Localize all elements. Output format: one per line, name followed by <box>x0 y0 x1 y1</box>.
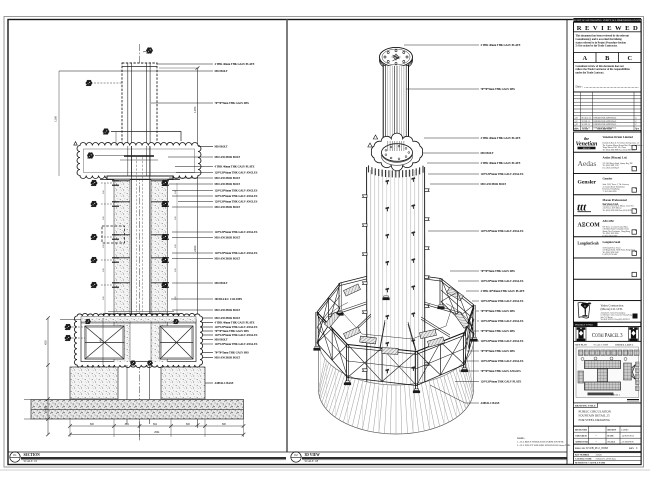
svg-text:M10 ANCHOR BOLT: M10 ANCHOR BOLT <box>215 309 241 312</box>
svg-text:PARCEL 1, LOT 2: PARCEL 1, LOT 2 <box>616 344 634 347</box>
svg-text:70*70*5mm THK GALV SHS: 70*70*5mm THK GALV SHS <box>215 352 250 355</box>
svg-text:REFERENCE CAD FILE NAME: REFERENCE CAD FILE NAME <box>575 462 606 465</box>
svg-text:AECOM: AECOM <box>603 219 614 223</box>
svg-text:CHECKED: CHECKED <box>575 436 587 438</box>
svg-text:M10 ANCHOR BOLT: M10 ANCHOR BOLT <box>215 177 241 180</box>
svg-text:Gensler: Gensler <box>578 180 597 186</box>
svg-text:70*70*5mm THK GALV SHS: 70*70*5mm THK GALV SHS <box>481 330 516 333</box>
svg-text:Langdon Seah: Langdon Seah <box>603 240 621 244</box>
svg-text:120*120*6mm THK GALV PLATE: 120*120*6mm THK GALV PLATE <box>481 381 522 384</box>
svg-text:315UB_PC_20005.dwg: 315UB_PC_20005.dwg <box>596 458 616 461</box>
svg-text:KEY PLAN: KEY PLAN <box>576 344 588 347</box>
svg-text:AΞCOM: AΞCOM <box>578 223 601 229</box>
svg-text:1260: 1260 <box>54 116 58 123</box>
svg-text:70*70*5mm THK GALV SHS: 70*70*5mm THK GALV SHS <box>215 330 250 333</box>
svg-text:Tel:(853) 28703211 Fax:(853): Tel:(853) 28703211 Fax:(853) 28703212 <box>601 318 631 321</box>
svg-text:SCALE 1:5: SCALE 1:5 <box>24 459 38 463</box>
svg-text:M10 BOLT: M10 BOLT <box>215 70 228 73</box>
svg-text:DRAWN: DRAWN <box>608 429 617 432</box>
svg-text:(Macau) CO. LTD.: (Macau) CO. LTD. <box>601 307 623 311</box>
svg-text:4 THK 40mm THK GALV PLATE: 4 THK 40mm THK GALV PLATE <box>215 166 255 169</box>
svg-text:2. ALL FILLET WELDED SHOULD BE: 2. ALL FILLET WELDED SHOULD BE 6mm THK. <box>517 444 571 447</box>
svg-text:Fax: (852) 2529 8419: Fax: (852) 2529 8419 <box>603 166 619 169</box>
svg-text:DESIGNED: DESIGNED <box>575 430 587 432</box>
svg-text:450: 450 <box>44 340 48 345</box>
svg-text:LUMO: LUMO <box>622 430 629 432</box>
svg-text:M10 ANCHOR BOLT: M10 ANCHOR BOLT <box>215 357 241 360</box>
svg-text:120*120*6mm THK GALV ANGLES: 120*120*6mm THK GALV ANGLES <box>215 231 258 234</box>
svg-text:70*70*5mm THK GALV SHS: 70*70*5mm THK GALV SHS <box>215 102 250 105</box>
svg-text:120*120*6mm THK GALV ANGLES: 120*120*6mm THK GALV ANGLES <box>215 334 258 337</box>
svg-text:M10 BOLT: M10 BOLT <box>215 146 228 149</box>
svg-text:120*120*6mm THK GALV ANGLES: 120*120*6mm THK GALV ANGLES <box>215 343 258 346</box>
svg-text:KEY NUMBER: KEY NUMBER <box>575 455 590 457</box>
svg-text:Venetian: Venetian <box>576 142 598 148</box>
svg-text:SCALE 1:8: SCALE 1:8 <box>305 459 319 463</box>
svg-text:450: 450 <box>100 337 103 342</box>
svg-text:PARCEL 2: PARCEL 2 <box>611 393 620 396</box>
svg-text:A: A <box>582 55 587 62</box>
svg-text:14-JUN-2015: 14-JUN-2015 <box>622 436 635 438</box>
svg-text:29 JUL 15: 29 JUL 15 <box>582 121 591 123</box>
svg-text:SECTION: SECTION <box>24 453 41 457</box>
svg-text:120*120*6mm THK GALV ANGLES: 120*120*6mm THK GALV ANGLES <box>215 201 258 204</box>
svg-text:MACAO: MACAO <box>583 147 591 150</box>
svg-text:△D: △D <box>575 116 579 119</box>
svg-text:A588 R.C BASE: A588 R.C BASE <box>481 402 500 405</box>
svg-text:02: 02 <box>294 453 298 457</box>
svg-text:120*120*6mm THK GALV ANGLES: 120*120*6mm THK GALV ANGLES <box>481 230 524 233</box>
svg-text:3D VIEW: 3D VIEW <box>305 453 321 457</box>
svg-text:AS SHOWN: AS SHOWN <box>622 441 634 444</box>
svg-text:DESCRIPTION: DESCRIPTION <box>598 128 613 130</box>
svg-text:M10 ANCHOR BOLT: M10 ANCHOR BOLT <box>215 156 241 159</box>
svg-text:120*120*6mm THK GALV ANGLES: 120*120*6mm THK GALV ANGLES <box>215 252 258 255</box>
svg-text:DATE: DATE <box>608 435 615 438</box>
svg-text:C: C <box>636 447 638 450</box>
svg-text:4 THK 40mm THK GALV PLATE: 4 THK 40mm THK GALV PLATE <box>215 63 255 66</box>
svg-text:ISSUED FOR APPROVAL: ISSUED FOR APPROVAL <box>594 120 618 123</box>
svg-text:APPROVED: APPROVED <box>575 441 588 444</box>
svg-text:M10 ANCHOR BOLT: M10 ANCHOR BOLT <box>215 206 241 209</box>
svg-text:4 THK 40*40mm THK GALV PLATE: 4 THK 40*40mm THK GALV PLATE <box>481 290 525 293</box>
svg-text:M10 ANCHOR BOLT: M10 ANCHOR BOLT <box>215 237 241 240</box>
svg-text:PROJECT TITLE: PROJECT TITLE <box>575 324 594 327</box>
svg-text:the: the <box>584 136 589 141</box>
svg-text:120*120*6mm THK GALV ANGLES: 120*120*6mm THK GALV ANGLES <box>215 326 258 329</box>
svg-text:70*70*5mm THK GALV SHS: 70*70*5mm THK GALV SHS <box>481 270 516 273</box>
svg-text:Services Ltd.: Services Ltd. <box>603 202 619 206</box>
svg-text:ISSUED FOR APPROVAL: ISSUED FOR APPROVAL <box>594 116 618 119</box>
svg-text:CAD FILE NAME: CAD FILE NAME <box>575 458 592 461</box>
svg-text:120*120*6mm THK GALV ANGLES: 120*120*6mm THK GALV ANGLES <box>481 173 524 176</box>
svg-text:M10 BOLT: M10 BOLT <box>481 152 494 155</box>
svg-text:--: -- <box>596 436 598 438</box>
svg-text:120*120*6mm THK GALV ANGLES: 120*120*6mm THK GALV ANGLES <box>481 280 524 283</box>
svg-text:20 JUL 15: 20 JUL 15 <box>582 124 591 126</box>
svg-text:120*120*6mm THK GALV ANGLES: 120*120*6mm THK GALV ANGLES <box>215 190 258 193</box>
svg-text:120*120*6mm THK GALV ANGLES: 120*120*6mm THK GALV ANGLES <box>215 195 258 198</box>
svg-text:REV: REV <box>629 447 634 450</box>
svg-text:2864: 2864 <box>154 431 160 434</box>
svg-text:Tel: (853) 2882 8888 Fax: (8: Tel: (853) 2882 8888 Fax: (853) 2882 888… <box>603 148 636 151</box>
svg-text:120*120*6mm THK GALV ANGLES: 120*120*6mm THK GALV ANGLES <box>481 320 524 323</box>
svg-text:01: 01 <box>13 453 17 457</box>
svg-text:315UB_PC2_05093: 315UB_PC2_05093 <box>586 447 609 450</box>
svg-text:Aedas: Aedas <box>578 159 597 168</box>
svg-text:DATE: DATE <box>583 127 589 130</box>
svg-text:5.4 for action by the Tra: 5.4 for action by the Trade Contractor. <box>576 45 618 48</box>
svg-text:Venetian Orient Limited: Venetian Orient Limited <box>603 135 634 139</box>
svg-text:70*70*5mm THK GALV SHS: 70*70*5mm THK GALV SHS <box>481 310 516 313</box>
svg-text:F: (852) 2576 0416: F: (852) 2576 0416 <box>603 253 618 256</box>
svg-text:70*70*5mm THK GALV SHS: 70*70*5mm THK GALV SHS <box>481 350 516 353</box>
svg-text:4 THK 40mm THK GALV PLATE: 4 THK 40mm THK GALV PLATE <box>481 162 521 165</box>
svg-text:DWG NO: DWG NO <box>575 447 585 450</box>
svg-text:B: B <box>605 55 610 62</box>
svg-text:T +852.2810.8399: T +852.2810.8399 <box>603 191 617 193</box>
svg-text:M10 ANCHOR BOLT: M10 ANCHOR BOLT <box>215 258 241 261</box>
svg-text:C: C <box>627 55 632 62</box>
svg-text:4 THK 40mm THK GALV PLATE: 4 THK 40mm THK GALV PLATE <box>215 322 255 325</box>
svg-text:FOR STEEL DRAWING: FOR STEEL DRAWING <box>579 418 611 422</box>
svg-text:2400: 2400 <box>193 245 197 252</box>
svg-text:Tel: (853) 2878 6288 Fax: (85: Tel: (853) 2878 6288 Fax: (853) 2878 616… <box>603 209 636 212</box>
svg-text:REV: REV <box>575 128 580 130</box>
svg-text:under the Trade Contract.: under the Trade Contract. <box>576 72 605 75</box>
svg-text:120*120*6mm THK GALV ANGLES: 120*120*6mm THK GALV ANGLES <box>215 172 258 175</box>
svg-text:1286: 1286 <box>193 106 197 113</box>
svg-text:06 AUG 15: 06 AUG 15 <box>582 116 592 119</box>
svg-text:DRAWING TITLE: DRAWING TITLE <box>575 404 596 407</box>
svg-text:M10 BOLT: M10 BOLT <box>215 339 228 342</box>
svg-text:1002: 1002 <box>44 406 48 413</box>
svg-text:--: -- <box>596 442 598 444</box>
svg-text:A588 R.C BASE: A588 R.C BASE <box>215 382 234 385</box>
svg-text:4 THK 40mm THK GALV PLATE: 4 THK 40mm THK GALV PLATE <box>481 137 521 140</box>
svg-text:Gensler: Gensler <box>603 177 613 181</box>
svg-text:Date :: Date : <box>576 85 584 89</box>
svg-text:70*70*5mm THK GALV ANGLES: 70*70*5mm THK GALV ANGLES <box>481 370 522 373</box>
svg-text:SCALE: SCALE <box>608 441 616 444</box>
svg-text:M10 BOLT: M10 BOLT <box>215 282 228 285</box>
svg-text:120*120*6mm THK GALV ANGLES: 120*120*6mm THK GALV ANGLES <box>481 360 524 363</box>
svg-text:M10 ANCHOR BOLT: M10 ANCHOR BOLT <box>481 183 507 186</box>
svg-text:SCALE 1:10000: SCALE 1:10000 <box>594 344 610 347</box>
svg-text:LangdonSeah: LangdonSeah <box>578 242 599 246</box>
svg-text:120*120*6mm THK GALV ANGLES: 120*120*6mm THK GALV ANGLES <box>481 340 524 343</box>
svg-text:REVIEWED: REVIEWED <box>577 25 638 32</box>
svg-text:Aedas (Macau) Ltd.: Aedas (Macau) Ltd. <box>603 156 628 160</box>
svg-text:M10 ANCHOR BOLT: M10 ANCHOR BOLT <box>215 183 241 186</box>
svg-text:315UB: 315UB <box>596 455 603 457</box>
svg-text:300 DIA R.C COLUMN: 300 DIA R.C COLUMN <box>215 298 243 301</box>
svg-text:70*70*5mm THK GALV SHS: 70*70*5mm THK GALV SHS <box>481 88 516 91</box>
svg-text:4 THK 40mm THK GALV PLATE: 4 THK 40mm THK GALV PLATE <box>481 44 521 47</box>
svg-text:120*120*6mm THK GALV ANGLES: 120*120*6mm THK GALV ANGLES <box>481 300 524 303</box>
svg-text:ISSUED FOR APPROVAL: ISSUED FOR APPROVAL <box>594 123 618 126</box>
svg-text:M10 ANCHOR BOLT: M10 ANCHOR BOLT <box>215 317 241 320</box>
